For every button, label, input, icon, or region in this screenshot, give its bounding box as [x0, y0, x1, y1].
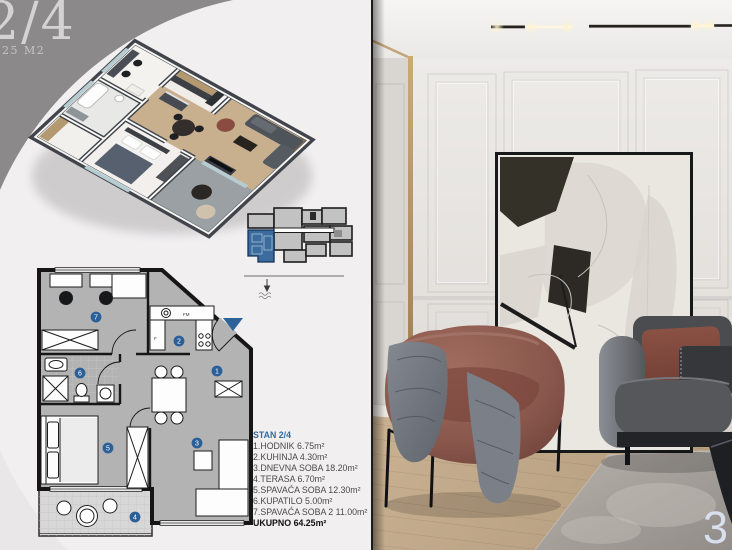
room-legend: STAN 2/4 1.HODNIK 6.75m² 2.KUHINJA 4.30m…	[253, 430, 368, 529]
legend-item: 3.DNEVNA SOBA 18.20m²	[253, 463, 368, 474]
north-arrow	[265, 279, 270, 291]
sofa	[599, 316, 732, 465]
page-number: 3	[703, 502, 728, 550]
legend-item: 1.HODNIK 6.75m²	[253, 441, 368, 452]
floorplan-panel: 2/4 25 M2	[0, 0, 371, 550]
ceiling	[371, 0, 732, 64]
legend-item: 6.KUPATILO 5.00m²	[253, 496, 368, 507]
legend-item: 7.SPAVAĆA SOBA 2 11.00m²	[253, 507, 368, 518]
room-number-4: 4	[133, 515, 137, 522]
kitchen-label-f: F	[154, 336, 157, 341]
legend-total: UKUPNO 64.25m²	[253, 518, 368, 529]
legend-item: 2.KUHINJA 4.30m²	[253, 452, 368, 463]
room-number-1: 1	[215, 369, 219, 376]
room-number-7: 7	[94, 315, 98, 322]
interior-photo: 3	[371, 0, 732, 550]
photo-edge	[371, 0, 385, 550]
room-number-6: 6	[78, 371, 82, 378]
legend-item: 4.TERASA 6.70m²	[253, 474, 368, 485]
brochure-page: 2/4 25 M2	[0, 0, 732, 550]
kitchen-label-fm: FM	[183, 312, 190, 317]
legend-item: 5.SPAVAĆA SOBA 12.30m²	[253, 485, 368, 496]
room-number-3: 3	[195, 441, 199, 448]
scale-marks	[259, 293, 271, 299]
legend-title: STAN 2/4	[253, 430, 368, 441]
room-number-2: 2	[177, 339, 181, 346]
building-keyplan	[244, 206, 362, 301]
plan-2d: FM F 1 2 3 4 5 6 7	[26, 260, 258, 542]
room-number-5: 5	[106, 446, 110, 453]
